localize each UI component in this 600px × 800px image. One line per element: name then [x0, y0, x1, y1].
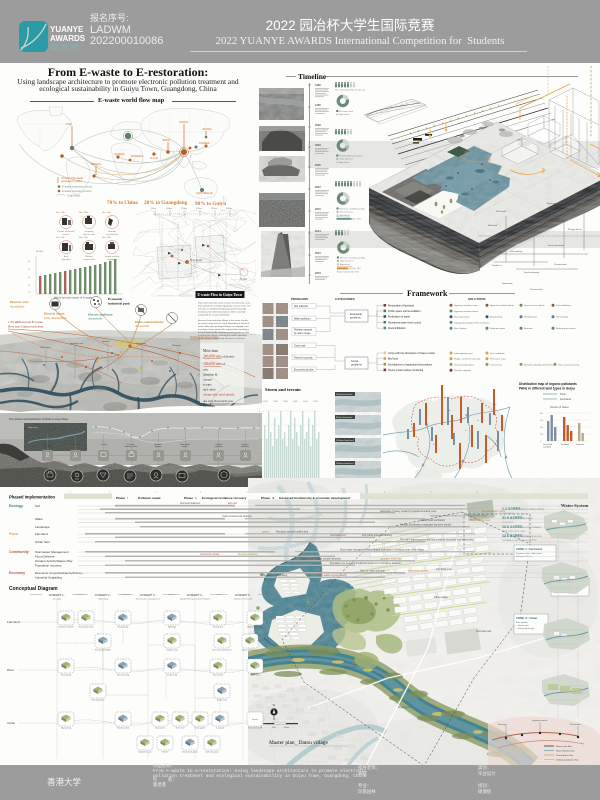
- svg-text:Dumped informal market: Dumped informal market: [190, 336, 219, 339]
- svg-text:River: River: [560, 392, 566, 396]
- svg-text:50km: 50km: [151, 208, 156, 210]
- svg-text:Agricultural income: Agricultural income: [247, 626, 262, 629]
- svg-text:Materialsupplier: Materialsupplier: [155, 443, 162, 448]
- svg-text:Farmland: Farmland: [560, 397, 572, 401]
- svg-text:Fish pond profitable: Fish pond profitable: [95, 649, 111, 652]
- svg-text:in Guiyu: in Guiyu: [203, 404, 215, 408]
- svg-text:Local relocation: Local relocation: [547, 244, 565, 247]
- svg-text:Heavy metal residue monitoring: Heavy metal residue monitoring: [388, 369, 424, 372]
- svg-text:200km: 200km: [196, 208, 202, 210]
- svg-text:10-year harvest cycles: 10-year harvest cycles: [482, 510, 506, 513]
- svg-text:CHINA: CHINA: [179, 120, 188, 124]
- svg-text:90% to Guiyu: 90% to Guiyu: [195, 201, 226, 207]
- svg-text:Flood Defense: Flood Defense: [35, 555, 55, 559]
- svg-text:1200mm flood level: 1200mm flood level: [336, 440, 354, 442]
- svg-text:Urban: Urban: [7, 721, 16, 725]
- svg-text:Animal husbandry and fishery: Animal husbandry and fishery: [524, 363, 554, 366]
- svg-text:25%: 25%: [357, 219, 361, 221]
- svg-text:Purification of water: Purification of water: [388, 316, 410, 319]
- svg-text:Bioswale: Bioswale: [524, 328, 534, 330]
- svg-text:Soil: Soil: [35, 504, 40, 508]
- svg-text:60%: 60%: [357, 268, 361, 270]
- svg-text:SOLUTIONS: SOLUTIONS: [468, 297, 486, 301]
- svg-text:+ Sunny Recharge: + Sunny Recharge: [516, 627, 535, 630]
- svg-text:Guiyu town: Guiyu town: [40, 346, 52, 349]
- svg-text:Farmland: Farmland: [7, 620, 20, 624]
- svg-text:Green roof: Green roof: [176, 728, 185, 730]
- svg-text:Soil conditioner: Soil conditioner: [490, 352, 505, 355]
- svg-text:2005: 2005: [315, 163, 321, 167]
- svg-text:PROBLEMS: PROBLEMS: [291, 297, 308, 301]
- svg-text:waste, while other privileged: waste, while other privileged villages a…: [198, 325, 250, 328]
- svg-text:6: 6: [259, 425, 261, 427]
- svg-text:Productdistributor: Productdistributor: [241, 443, 250, 448]
- svg-text:processing industry: processing industry: [408, 569, 429, 572]
- svg-text:Productproducers: Productproducers: [215, 443, 223, 448]
- svg-text:Improving e-waste: Improving e-waste: [337, 265, 352, 268]
- svg-text:Pollution repair: Pollution repair: [138, 496, 161, 500]
- svg-text:Agricultural: Agricultural: [339, 113, 350, 116]
- svg-text:Heavy metal crops: Heavy metal crops: [79, 626, 94, 629]
- svg-text:Trade flows: Trade flows: [67, 194, 81, 198]
- svg-text:Sinking green space: Sinking green space: [556, 327, 577, 330]
- svg-text:Burning: Burning: [108, 230, 116, 233]
- svg-text:50: 50: [28, 269, 31, 271]
- svg-text:circuit board: circuit board: [106, 233, 119, 236]
- svg-text:River: River: [7, 668, 14, 672]
- svg-text:Mt 2019: Mt 2019: [36, 250, 44, 253]
- svg-text:800: 800: [540, 413, 543, 415]
- svg-text:Stripping: Stripping: [85, 230, 94, 233]
- svg-text:Soil conditioner: Soil conditioner: [556, 304, 571, 307]
- svg-text:Electronic work/disassembly: Electronic work/disassembly: [340, 207, 365, 210]
- svg-text:200: 200: [540, 434, 543, 436]
- svg-text:8: 8: [384, 492, 386, 494]
- svg-text:Huamei: Huamei: [102, 341, 110, 343]
- svg-text:components: components: [83, 258, 96, 261]
- svg-text:Nov 15th: Nov 15th: [56, 211, 66, 214]
- svg-text:NIGERIA: NIGERIA: [131, 154, 143, 158]
- svg-text:copper: copper: [203, 378, 213, 382]
- svg-text:9: 9: [430, 492, 432, 494]
- svg-text:5Rs model: 5Rs model: [496, 210, 506, 213]
- svg-text:CONCEPT 1 -: CONCEPT 1 -: [49, 593, 66, 597]
- svg-text:Periodic mapping: Periodic mapping: [454, 369, 472, 372]
- svg-text:BRAZIL: BRAZIL: [91, 162, 102, 166]
- svg-text:2003: 2003: [315, 143, 321, 147]
- svg-text:electric wire: electric wire: [83, 233, 95, 236]
- svg-text:Fish ponds and earth farming: Fish ponds and earth farming: [362, 534, 393, 537]
- svg-text:of plastic: of plastic: [222, 355, 235, 359]
- svg-text:Bird food: Bird food: [388, 358, 399, 361]
- svg-text:CONCEPT 5 -: CONCEPT 5 -: [235, 593, 252, 597]
- svg-text:International garden: International garden: [182, 751, 198, 754]
- svg-text:Chemical treatment: Chemical treatment: [180, 502, 200, 505]
- svg-text:1.55 million tons E-waste: 1.55 million tons E-waste: [8, 320, 43, 324]
- svg-text:Hyperaccumulator plants: Hyperaccumulator plants: [454, 310, 479, 313]
- svg-text:PAHs in different land types i: PAHs in different land types in Guiyu: [519, 386, 575, 390]
- svg-text:Groundwater: Groundwater: [554, 263, 567, 266]
- svg-text:Oils proof agriculture: Oils proof agriculture: [454, 363, 475, 366]
- svg-text:Events dismantle: Events dismantle: [248, 727, 262, 730]
- svg-text:60: 60: [28, 261, 31, 263]
- svg-text:are recycled each year: are recycled each year: [203, 399, 234, 403]
- svg-text:Retention pond: Retention pond: [490, 327, 506, 330]
- svg-text:Population rise to environment: Population rise to environmental and eco…: [330, 562, 402, 565]
- svg-text:500mm flood level: 500mm flood level: [336, 394, 353, 396]
- svg-text:Melting: Melting: [85, 255, 93, 258]
- svg-text:alumina &: alumina &: [203, 373, 218, 377]
- svg-text:Irrigation strip: Irrigation strip: [167, 649, 178, 652]
- svg-text:2000mm flood level: 2000mm flood level: [336, 463, 354, 465]
- svg-text:Drainage: Drainage: [498, 723, 508, 726]
- svg-text:Household/other business: Household/other business: [339, 154, 362, 157]
- svg-text:INDIA: INDIA: [162, 138, 170, 142]
- svg-text:Datou village: Datou village: [434, 596, 448, 599]
- svg-text:Public space soil remediation: Public space soil remediation: [388, 310, 421, 313]
- svg-text:E-waste exporting country: E-waste exporting country: [62, 185, 93, 189]
- svg-text:woodland: woodland: [543, 446, 551, 448]
- svg-text:+: +: [433, 442, 435, 446]
- svg-text:Land reshaping: Land reshaping: [523, 271, 540, 274]
- svg-text:+: +: [477, 418, 479, 422]
- svg-text:Water taxis: Water taxis: [251, 674, 260, 677]
- svg-text:Tree box: Tree box: [161, 752, 168, 754]
- svg-text:150km: 150km: [181, 208, 187, 210]
- svg-text:Phase: Phase: [116, 496, 125, 500]
- svg-text:Ecological recovery: Ecological recovery: [238, 553, 259, 556]
- svg-text:Incubus ring: Incubus ring: [167, 675, 177, 677]
- svg-text:Restoration of farmland: Restoration of farmland: [388, 304, 415, 307]
- svg-text:Nanyang: Nanyang: [172, 345, 182, 347]
- svg-text:GHANA: GHANA: [114, 152, 125, 156]
- svg-text:Because Guiyu and other villag: Because Guiyu and other villages in the …: [198, 319, 248, 322]
- svg-text:Farmer's poverty: Farmer's poverty: [294, 356, 313, 359]
- svg-text:Plantroom' trays: Plantroom' trays: [490, 358, 507, 361]
- svg-text:Waste recycled: Waste recycled: [337, 215, 350, 218]
- svg-text:Beigang river: Beigang river: [70, 342, 83, 345]
- svg-text:Phase: Phase: [261, 496, 270, 500]
- svg-text:Silt cleaning: Silt cleaning: [61, 674, 71, 677]
- svg-text:Pickle garden: Pickle garden: [195, 728, 206, 730]
- svg-text:Nov 15th: Nov 15th: [56, 236, 66, 239]
- svg-text:8: 8: [259, 411, 261, 413]
- svg-text:Hyperaccumulator plants: Hyperaccumulator plants: [490, 304, 515, 307]
- svg-text:Electric wire: Electric wire: [10, 300, 29, 304]
- svg-text:problems: problems: [350, 316, 361, 320]
- svg-text:Water route flow: Water route flow: [556, 745, 572, 748]
- svg-text:Soil washing: Soil washing: [510, 250, 523, 253]
- svg-text:ZONE 3: Urban: ZONE 3: Urban: [516, 616, 538, 620]
- svg-text:Riverside park: Riverside park: [476, 630, 492, 633]
- svg-text:YUANYE: YUANYE: [50, 25, 84, 34]
- svg-text:Increased biodiversity & econo: Increased biodiversity & economic develo…: [279, 496, 350, 500]
- svg-text:Sales of crops and meat: Sales of crops and meat: [360, 569, 385, 572]
- svg-text:Electronic work/disassembly: Electronic work/disassembly: [340, 256, 365, 259]
- svg-text:Alignment: Alignment: [545, 202, 556, 205]
- svg-text:Flood infiltration: Flood infiltration: [388, 327, 406, 330]
- svg-text:E-waste Flow in Guiyu Town: E-waste Flow in Guiyu Town: [198, 293, 242, 297]
- svg-text:Bay planting: Bay planting: [490, 316, 503, 319]
- svg-text:Economic: Economic: [108, 297, 123, 301]
- svg-text:Revetment water level control: Revetment water level control: [388, 321, 421, 324]
- svg-text:Silt cleaning: Silt cleaning: [556, 316, 569, 319]
- svg-text:Ecology: Ecology: [9, 504, 23, 508]
- svg-text:Soil pollution: Soil pollution: [294, 305, 309, 308]
- svg-text:Rain system: Rain system: [213, 674, 223, 677]
- svg-text:Waste recycled after 2015: Waste recycled after 2015: [337, 270, 359, 273]
- svg-text:Social: Social: [351, 359, 358, 363]
- svg-text:KOREA: KOREA: [199, 141, 210, 145]
- svg-text:Phytoplankton level: Phytoplankton level: [470, 519, 490, 522]
- svg-text:Hyperaccumulator crops: Hyperaccumulator crops: [454, 304, 479, 307]
- svg-text:Courtyard: Courtyard: [216, 727, 224, 730]
- svg-text:CONCEPT 3 -: CONCEPT 3 -: [140, 593, 157, 597]
- svg-text:Wetland pool: Wetland pool: [524, 316, 537, 319]
- svg-text:reactivation lots: reactivation lots: [330, 534, 347, 537]
- svg-text:Farmland: Farmland: [35, 532, 48, 536]
- svg-text:Spatial Manipulation& Program: Spatial Manipulation& Program: [180, 597, 210, 600]
- svg-text:+: +: [465, 428, 467, 432]
- svg-text:Sorted e-waste: Sorted e-waste: [105, 255, 120, 258]
- svg-text:+: +: [495, 402, 497, 406]
- svg-text:Trash removal & silt cleaning: Trash removal & silt cleaning: [222, 515, 252, 518]
- svg-text:Vegetated swale: Vegetated swale: [138, 751, 151, 754]
- svg-text:2013: 2013: [315, 229, 321, 233]
- svg-text:Re-burial: Re-burial: [487, 224, 497, 227]
- svg-text:1990: 1990: [283, 401, 289, 403]
- svg-text:The content and distribution o: The content and distribution of PAHs in …: [9, 417, 68, 421]
- svg-text:Outdoor Activity/Nature Play: Outdoor Activity/Nature Play: [35, 559, 73, 563]
- svg-text:Other business: Other business: [339, 158, 352, 161]
- svg-text:scraps: scraps: [203, 383, 212, 387]
- svg-text:chemically used metals: chemically used metals: [203, 393, 235, 397]
- svg-text:digestion: digestion: [62, 258, 72, 261]
- svg-text:40: 40: [28, 277, 31, 279]
- svg-text:CONCEPT 2 -: CONCEPT 2 -: [95, 593, 112, 597]
- svg-text:Agricultural: Agricultural: [339, 161, 350, 164]
- svg-text:Stormwater management: Stormwater management: [136, 597, 161, 600]
- svg-text:Hong Kong: Hong Kong: [190, 260, 202, 262]
- svg-text:Storm water management and pol: Storm water management and pollution pur…: [340, 548, 424, 551]
- svg-text:flow into Guiyu each year: flow into Guiyu each year: [8, 325, 44, 329]
- svg-text:Irrigation canals: Irrigation canals: [532, 719, 548, 722]
- svg-text:Undergroundwater flow: Undergroundwater flow: [556, 759, 579, 762]
- svg-text:Flood storage: Flood storage: [118, 626, 129, 629]
- svg-text:Electronic work: Electronic work: [339, 110, 353, 113]
- svg-text:Landform: Landform: [491, 264, 502, 267]
- svg-text:Framework: Framework: [407, 289, 448, 298]
- svg-text:Topographic design of the reve: Topographic design of the revetment: [454, 321, 490, 324]
- svg-text:Nov 15th: Nov 15th: [102, 236, 112, 239]
- svg-text:Retention pond: Retention pond: [117, 727, 129, 730]
- svg-text:Purification: Purification: [570, 723, 582, 726]
- svg-text:Ⅲ: Ⅲ: [273, 497, 275, 500]
- svg-text:industrial park: industrial park: [108, 302, 130, 306]
- svg-text:garden: garden: [262, 530, 270, 533]
- svg-text:2010: 2010: [315, 207, 321, 211]
- svg-text:Rain garden: Rain garden: [155, 728, 165, 730]
- svg-text:Hydrology: Hydrology: [98, 597, 109, 600]
- svg-text:2015: 2015: [315, 251, 321, 255]
- svg-text:AUSTRALIA: AUSTRALIA: [196, 191, 213, 195]
- svg-text:600: 600: [540, 420, 543, 422]
- svg-text:Industrial Upgrading: Industrial Upgrading: [35, 576, 62, 580]
- svg-text:1: 1: [70, 492, 72, 494]
- svg-text:Population recovery: Population recovery: [35, 564, 62, 568]
- svg-text:Water filtration flow: Water filtration flow: [556, 750, 575, 753]
- svg-text:Economic Crops/Husbandry/Fishe: Economic Crops/Husbandry/Fishery: [35, 571, 84, 575]
- svg-text:Container: Container: [72, 443, 81, 446]
- svg-text:70% to China: 70% to China: [107, 200, 138, 206]
- svg-text:Economic decline: Economic decline: [294, 368, 314, 371]
- svg-text:Conceptual Diagram: Conceptual Diagram: [9, 586, 58, 592]
- svg-text:2000: 2000: [293, 401, 299, 403]
- svg-text:Hedge, treatment and trays: Hedge, treatment and trays: [454, 358, 481, 361]
- svg-text:2020: 2020: [313, 401, 319, 403]
- svg-text:Nov 15th: Nov 15th: [79, 211, 89, 214]
- svg-text:1985: 1985: [315, 83, 321, 87]
- svg-text:Phytoremediation: Phytoremediation: [547, 220, 566, 223]
- svg-text:4: 4: [259, 439, 261, 441]
- svg-text:Green manure plants: Green manure plants: [524, 304, 545, 307]
- svg-text:A stable and pleasant landscap: A stable and pleasant landscape has been…: [400, 523, 452, 526]
- svg-text:1995: 1995: [315, 103, 321, 107]
- svg-text:0: 0: [540, 441, 541, 443]
- svg-text:Guiyu river: Guiyu river: [28, 427, 38, 429]
- svg-text:Electric circut: Electric circut: [44, 312, 65, 316]
- svg-text:Toxic crop processing: Toxic crop processing: [558, 363, 580, 366]
- svg-text:Adsorption of heavy metals by: Adsorption of heavy metals by hyperaccum…: [380, 510, 437, 513]
- svg-text:construction phase: construction phase: [200, 553, 220, 556]
- svg-text:+: +: [449, 408, 451, 412]
- svg-text:problems: problems: [351, 363, 362, 367]
- svg-text:300km: 300km: [226, 208, 232, 210]
- svg-text:Bay planting: Bay planting: [61, 727, 71, 730]
- svg-text:Events: Events: [252, 718, 258, 721]
- svg-text:Storm and terrain: Storm and terrain: [265, 387, 301, 392]
- svg-text:Straw superstructure: Straw superstructure: [242, 649, 259, 652]
- svg-text:E-waste receiving country: E-waste receiving country: [62, 189, 92, 193]
- svg-text:CATEGORIES: CATEGORIES: [335, 297, 355, 301]
- svg-text:formal e-waste recycle industr: formal e-waste recycle industry: [315, 574, 348, 577]
- svg-text:Ecological resilience recovery: Ecological resilience recovery: [202, 496, 247, 500]
- svg-text:250km: 250km: [211, 208, 217, 210]
- svg-text:Beigang river: Beigang river: [398, 706, 412, 709]
- svg-text:Number of values: Number of values: [550, 406, 570, 409]
- svg-text:Stormwater Management: Stormwater Management: [35, 550, 69, 554]
- svg-text:The Composition Map of a perso: The Composition Map of a person: [335, 89, 365, 92]
- svg-text:USA: USA: [66, 122, 72, 126]
- svg-text:Electronicproducts: Electronicproducts: [44, 443, 52, 448]
- svg-text:Crops with low absorption of h: Crops with low absorption of heavy metal…: [388, 352, 436, 355]
- svg-text:2: 2: [259, 453, 261, 455]
- svg-text:disassemble: disassemble: [10, 305, 25, 309]
- svg-text:800mm flood level: 800mm flood level: [336, 417, 353, 419]
- svg-text:To Viet: To Viet: [240, 278, 247, 281]
- svg-text:Rain Garden: Rain Garden: [454, 327, 467, 330]
- svg-text:recreation expansion: recreation expansion: [380, 558, 402, 561]
- svg-text:1980: 1980: [273, 401, 279, 403]
- svg-text:Sediment: Sediment: [576, 443, 584, 446]
- svg-text:N: N: [273, 703, 275, 707]
- svg-text:Nov 15th: Nov 15th: [102, 211, 112, 214]
- svg-text:Industrial Economy: Industrial Economy: [234, 597, 254, 600]
- svg-text:Landscape: Landscape: [35, 525, 50, 529]
- svg-text:by storm surge: by storm surge: [294, 332, 311, 335]
- svg-text:Remediation: Remediation: [483, 244, 497, 247]
- svg-text:Adsorption of heavy metals by: Adsorption of heavy metals by hyperaccum…: [430, 515, 488, 518]
- svg-text:2007: 2007: [315, 185, 321, 189]
- svg-text:generated in 2019: generated in 2019: [61, 179, 82, 183]
- svg-text:Jasmine tea: Jasmine tea: [490, 363, 503, 366]
- svg-text:30: 30: [28, 285, 31, 287]
- svg-text:20% to Guangdong: 20% to Guangdong: [144, 200, 188, 206]
- svg-text:2000: 2000: [315, 123, 321, 127]
- svg-text:CONCEPT 4 -: CONCEPT 4 -: [187, 593, 204, 597]
- svg-text:recycling of waste plastics li: recycling of waste plastics like reporte…: [198, 328, 249, 331]
- svg-text:Phased Implementation: Phased Implementation: [9, 495, 55, 500]
- svg-text:potato: potato: [530, 538, 537, 541]
- svg-text:U.A.E: U.A.E: [150, 156, 158, 160]
- svg-text:agro test: agro test: [228, 502, 237, 505]
- svg-text:and other: and other: [203, 388, 217, 392]
- svg-text:Other business: Other business: [340, 211, 353, 214]
- svg-text:Community: Community: [9, 550, 29, 554]
- svg-text:Acid: Acid: [64, 255, 69, 258]
- svg-text:Food: Food: [9, 532, 18, 536]
- svg-text:Nov 15th: Nov 15th: [79, 236, 89, 239]
- svg-text:Timeline: Timeline: [298, 72, 327, 81]
- svg-text:200m: 200m: [284, 727, 289, 729]
- svg-text:Intercropping trend: Intercropping trend: [454, 352, 473, 355]
- svg-text:Guiyu river: Guiyu river: [344, 666, 356, 669]
- svg-text:recycle: recycle: [63, 233, 71, 236]
- svg-text:responsible for e-waste distri: responsible for e-waste distribution.: [198, 314, 231, 317]
- svg-text:园冶杯: 园冶杯: [50, 43, 82, 52]
- svg-text:Courier: Courier: [101, 443, 108, 446]
- svg-text:Economy: Economy: [9, 571, 25, 575]
- svg-text:Distribution map of organic po: Distribution map of organic pollutants: [519, 382, 577, 386]
- svg-text:Rice crop superstructure: Rice crop superstructure: [212, 649, 232, 652]
- svg-text:JAPAN: JAPAN: [202, 127, 211, 131]
- svg-text:2010: 2010: [303, 401, 309, 403]
- svg-text:Phase: Phase: [184, 496, 193, 500]
- svg-text:Ecological: Ecological: [350, 312, 362, 316]
- svg-text:disassemble: disassemble: [88, 317, 103, 321]
- svg-text:Viewing deck: Viewing deck: [213, 627, 224, 629]
- svg-text:Acupuncture: Acupuncture: [217, 699, 227, 702]
- svg-text:Plastic and metal: Plastic and metal: [58, 230, 75, 233]
- svg-text:100km: 100km: [166, 208, 172, 210]
- svg-text:10: 10: [476, 492, 479, 494]
- svg-text:Design driven: Design driven: [567, 228, 582, 231]
- svg-text:+ Green roof: + Green roof: [516, 624, 529, 627]
- svg-text:Hydrology: Hydrology: [168, 627, 176, 629]
- svg-text:the local fixed mobile company: the local fixed mobile company, and many…: [198, 331, 249, 334]
- svg-text:Groundwater flow: Groundwater flow: [556, 754, 574, 757]
- svg-text:Farmland: Farmland: [561, 443, 569, 446]
- svg-text:Rain garden: Rain garden: [516, 621, 529, 624]
- svg-text:Plant absorption: Plant absorption: [454, 316, 471, 319]
- svg-text:The soil is transplanted as th: The soil is transplanted as the roof or …: [400, 538, 474, 541]
- svg-text:2019: 2019: [315, 271, 321, 275]
- svg-text:Aquatic plant purification: Aquatic plant purification: [420, 519, 446, 522]
- svg-text:Chemical treatment: Chemical treatment: [58, 626, 74, 629]
- svg-text:Master plan_ Datou village: Master plan_ Datou village: [269, 740, 328, 746]
- svg-text:Farmland use gets healthy food: Farmland use gets healthy food: [276, 530, 309, 533]
- svg-text:Gathering space: Gathering space: [205, 751, 218, 754]
